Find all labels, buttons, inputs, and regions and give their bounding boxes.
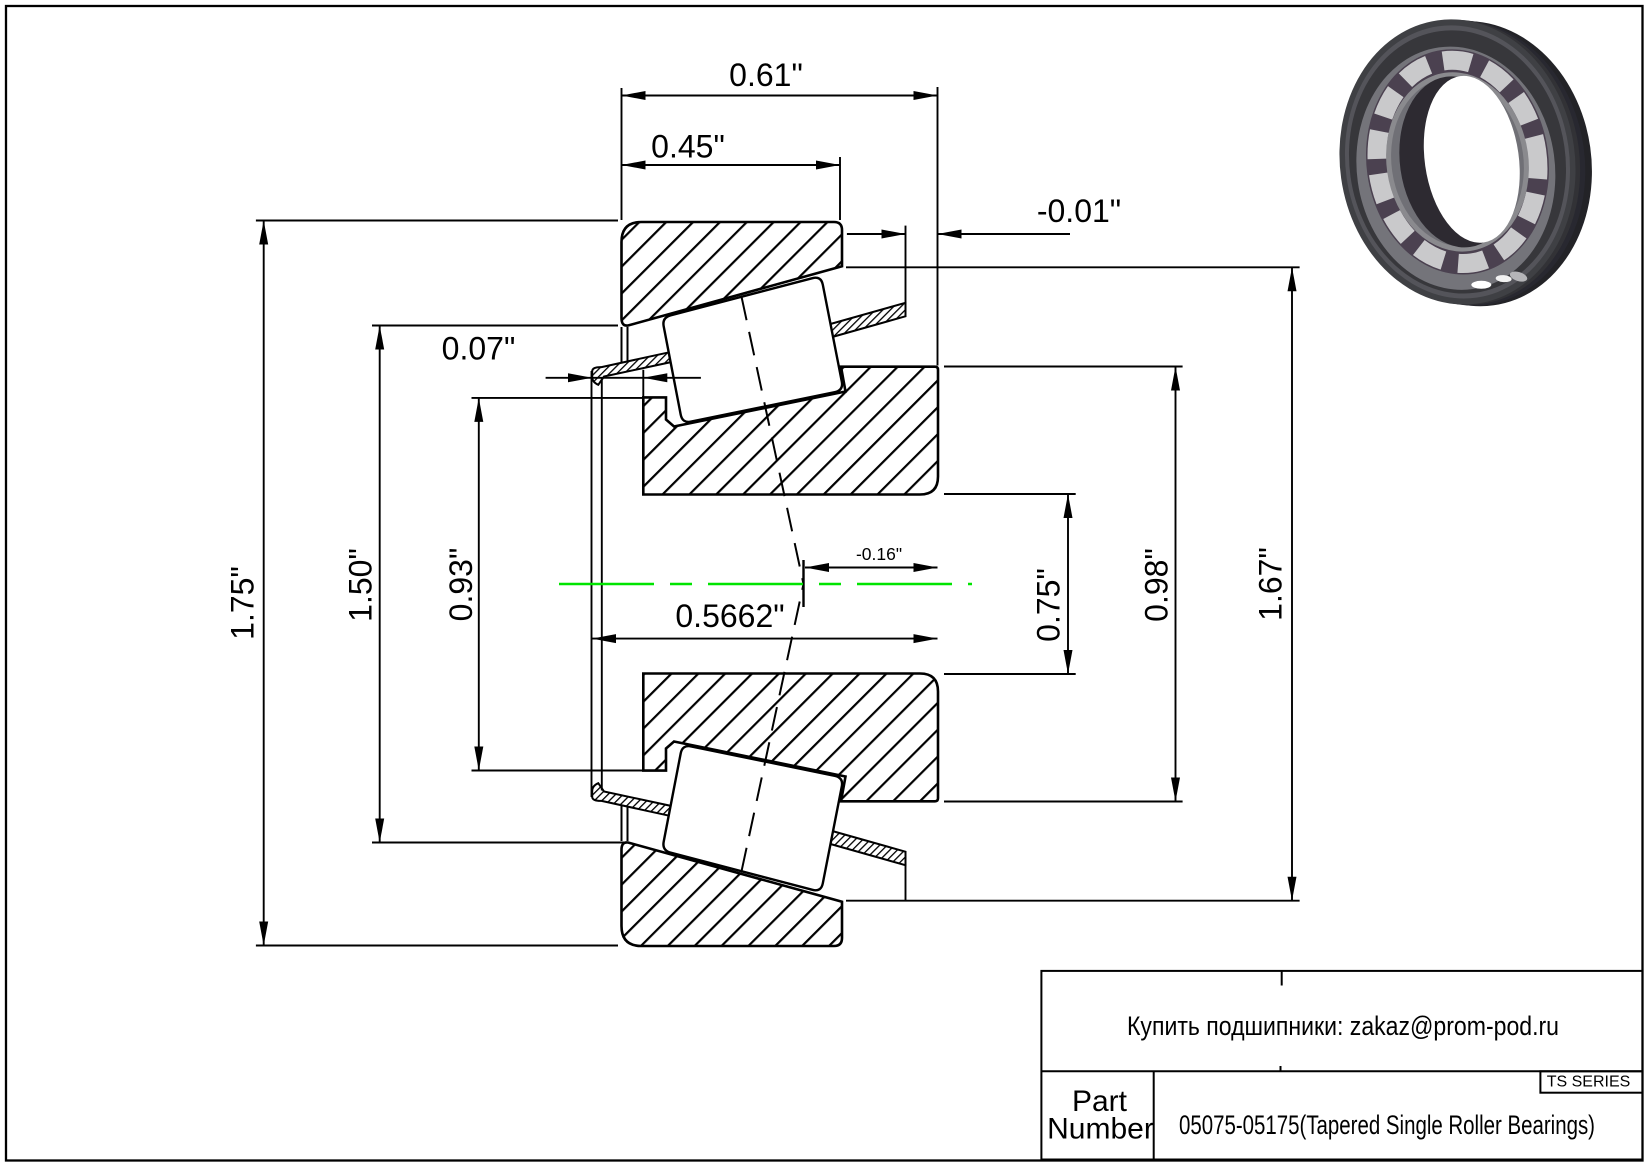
svg-text:0.98": 0.98" — [1139, 548, 1175, 622]
svg-text:Купить подшипники: zakaz@prom-: Купить подшипники: zakaz@prom-pod.ru — [1127, 1011, 1559, 1041]
svg-text:-0.01": -0.01" — [1037, 193, 1121, 229]
svg-text:1.67": 1.67" — [1253, 547, 1289, 621]
svg-text:Number: Number — [1047, 1113, 1154, 1146]
svg-text:0.5662": 0.5662" — [675, 598, 784, 634]
svg-text:0.75": 0.75" — [1031, 568, 1067, 642]
svg-text:1.75": 1.75" — [225, 566, 261, 640]
svg-text:0.61": 0.61" — [729, 57, 803, 93]
svg-text:05075-05175(Tapered Single Rol: 05075-05175(Tapered Single Roller Bearin… — [1179, 1110, 1595, 1140]
svg-text:0.07": 0.07" — [442, 330, 516, 366]
svg-text:-0.16": -0.16" — [856, 544, 902, 564]
svg-text:0.45": 0.45" — [651, 129, 725, 165]
svg-text:TS SERIES: TS SERIES — [1547, 1074, 1631, 1091]
svg-text:1.50": 1.50" — [343, 548, 379, 622]
svg-text:0.93": 0.93" — [443, 548, 479, 622]
